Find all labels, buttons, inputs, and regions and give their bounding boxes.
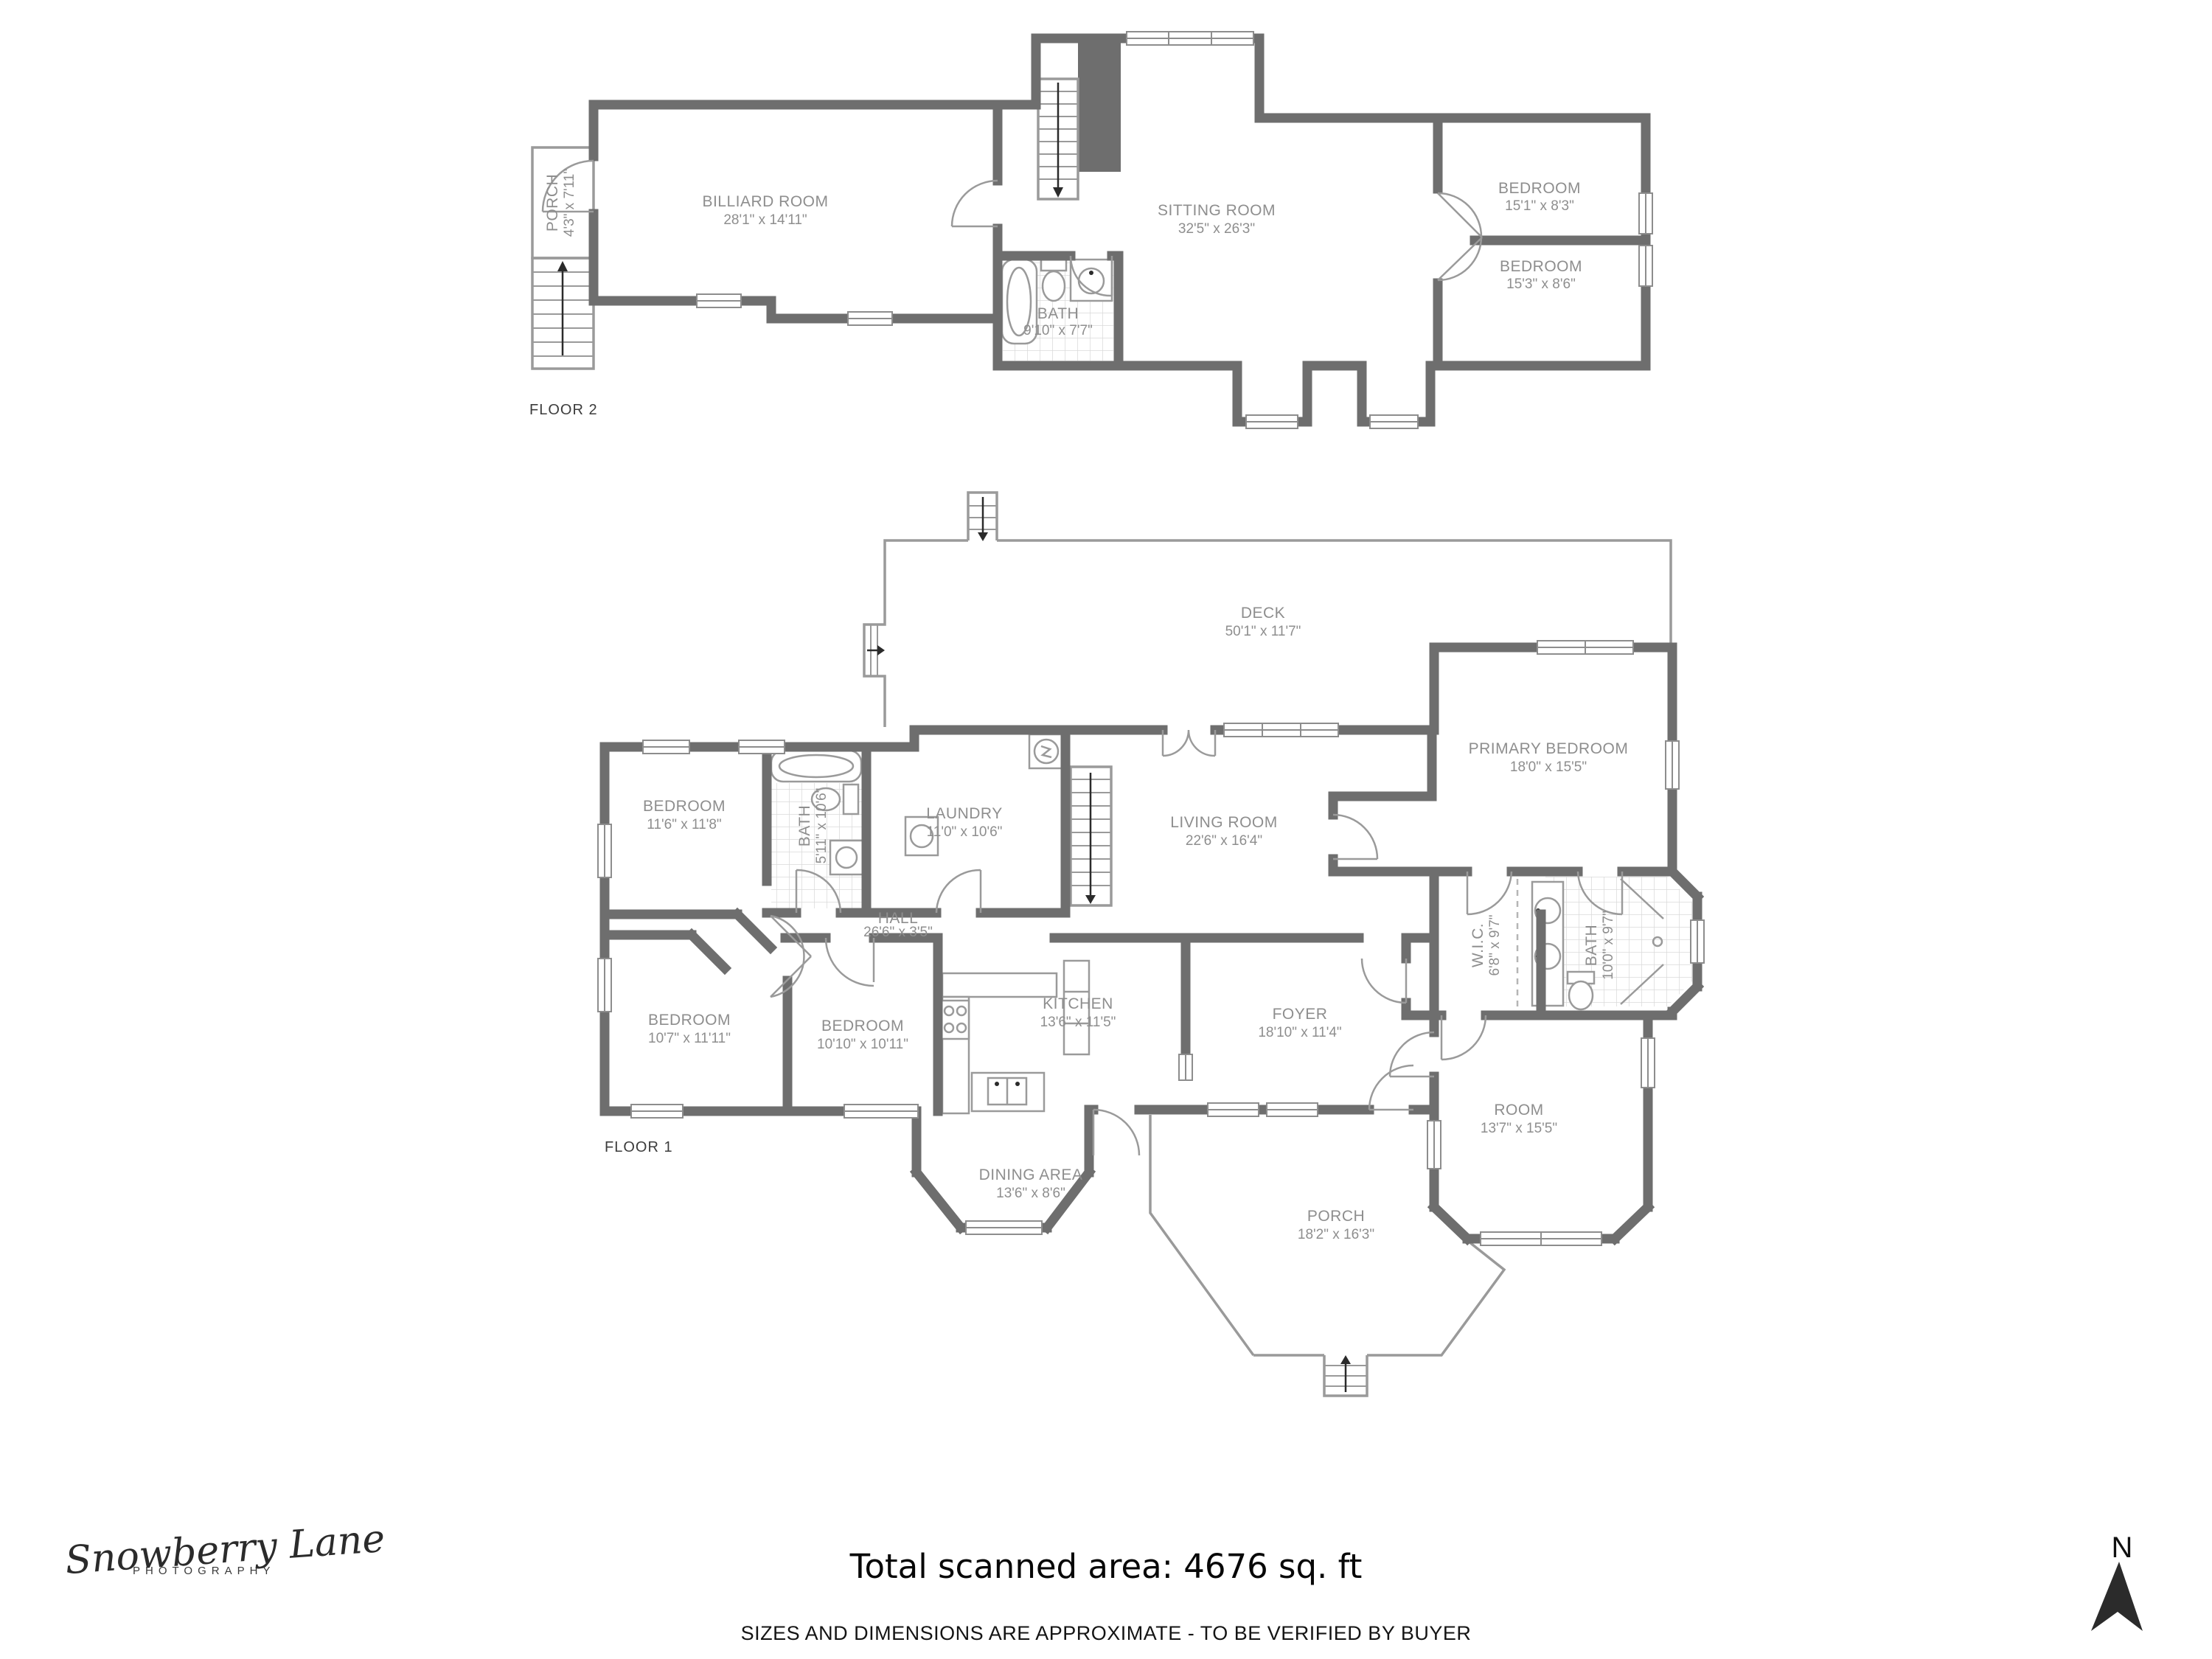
room-label-bedroom-f2b-name: BEDROOM xyxy=(1500,258,1582,275)
room-label-dining-dims: 13'6" x 8'6" xyxy=(996,1186,1065,1201)
photographer-logo: Snowberry Lane PHOTOGRAPHY xyxy=(65,1528,385,1577)
room-label-living-dims: 22'6" x 16'4" xyxy=(1186,833,1262,849)
room-label-primary-dims: 18'0" x 15'5" xyxy=(1510,759,1587,775)
room-label-bath2-dims: 9'10" x 7'7" xyxy=(1023,323,1093,338)
floor2-label: FLOOR 2 xyxy=(529,402,598,418)
room-label-bedroom1-name: BEDROOM xyxy=(643,798,726,815)
room-label-bath2-name: BATH xyxy=(1037,305,1079,322)
room-label-deck-name: DECK xyxy=(1241,605,1285,622)
room-label-bedroom3-dims: 10'10" x 10'11" xyxy=(817,1037,908,1052)
floor-plan-canvas: PORCH 4'3" x 7'11" BILLIARD ROOM 28'1" x… xyxy=(0,0,2212,1659)
room-label-living-name: LIVING ROOM xyxy=(1170,814,1278,831)
room-label-bedroom2-dims: 10'7" x 11'11" xyxy=(648,1031,731,1046)
floor2-stairwell xyxy=(1038,79,1078,199)
floor1-label: FLOOR 1 xyxy=(605,1139,673,1155)
floor1-kitchen-fixtures xyxy=(941,961,1089,1113)
room-label-bedroom-f2a-dims: 15'1" x 8'3" xyxy=(1505,198,1574,214)
room-label-bedroom-f2b-dims: 15'3" x 8'6" xyxy=(1506,276,1576,292)
floor1-porch-outline xyxy=(1150,1115,1504,1396)
room-label-sitting-dims: 32'5" x 26'3" xyxy=(1178,221,1255,237)
disclaimer-text: SIZES AND DIMENSIONS ARE APPROXIMATE - T… xyxy=(0,1622,2212,1645)
room-label-sitting-name: SITTING ROOM xyxy=(1158,202,1276,219)
room-label-porch1-name: PORCH xyxy=(1307,1208,1365,1225)
room-label-bedroom2-name: BEDROOM xyxy=(648,1012,731,1029)
room-label-billiard-dims: 28'1" x 14'11" xyxy=(723,212,807,228)
floor1-stairwell xyxy=(1071,767,1111,905)
room-label-porch2-dims: 4'3" x 7'11" xyxy=(562,169,577,237)
room-label-room-name: ROOM xyxy=(1494,1102,1543,1119)
room-label-primary-name: PRIMARY BEDROOM xyxy=(1469,740,1629,757)
room-label-kitchen-name: KITCHEN xyxy=(1043,995,1113,1012)
room-label-deck-dims: 50'1" x 11'7" xyxy=(1225,624,1301,639)
room-label-wic-dims: 6'8" x 9'7" xyxy=(1487,914,1503,975)
floor2-plan: PORCH 4'3" x 7'11" BILLIARD ROOM 28'1" x… xyxy=(529,32,1652,428)
room-label-primary-bath-name: BATH xyxy=(1583,925,1600,966)
room-label-hall-dims: 26'6" x 3'5" xyxy=(863,925,933,940)
room-label-bedroom-f2a-name: BEDROOM xyxy=(1498,180,1581,197)
room-label-billiard-name: BILLIARD ROOM xyxy=(702,193,828,210)
floor1-labels: DECK 50'1" x 11'7" PRIMARY BEDROOM 18'0"… xyxy=(605,605,1628,1242)
room-label-primary-bath-dims: 10'0" x 9'7" xyxy=(1601,911,1616,980)
room-label-foyer-dims: 18'10" x 11'4" xyxy=(1258,1025,1341,1040)
room-label-bath1-name: BATH xyxy=(796,805,813,846)
room-label-porch2-name: PORCH xyxy=(544,174,561,232)
room-label-room-dims: 13'7" x 15'5" xyxy=(1481,1121,1557,1136)
room-label-laundry-name: LAUNDRY xyxy=(926,805,1002,822)
room-label-porch1-dims: 18'2" x 16'3" xyxy=(1298,1227,1374,1242)
room-label-foyer-name: FOYER xyxy=(1273,1006,1328,1023)
floor2-chimney xyxy=(1078,43,1121,172)
room-label-dining-name: DINING AREA xyxy=(979,1166,1083,1183)
floorplan-page: { "floor2": { "label": "FLOOR 2", "rooms… xyxy=(0,0,2212,1659)
room-label-bath1-dims: 5'11" x 10'6" xyxy=(814,788,829,864)
room-label-wic-name: W.I.C. xyxy=(1470,923,1486,967)
room-label-laundry-dims: 11'0" x 10'6" xyxy=(927,824,1003,840)
room-label-bedroom1-dims: 11'6" x 11'8" xyxy=(647,817,721,832)
room-label-bedroom3-name: BEDROOM xyxy=(821,1018,904,1034)
room-label-kitchen-dims: 13'6" x 11'5" xyxy=(1040,1015,1116,1030)
floor1-plan: DECK 50'1" x 11'7" PRIMARY BEDROOM 18'0"… xyxy=(598,493,1704,1396)
